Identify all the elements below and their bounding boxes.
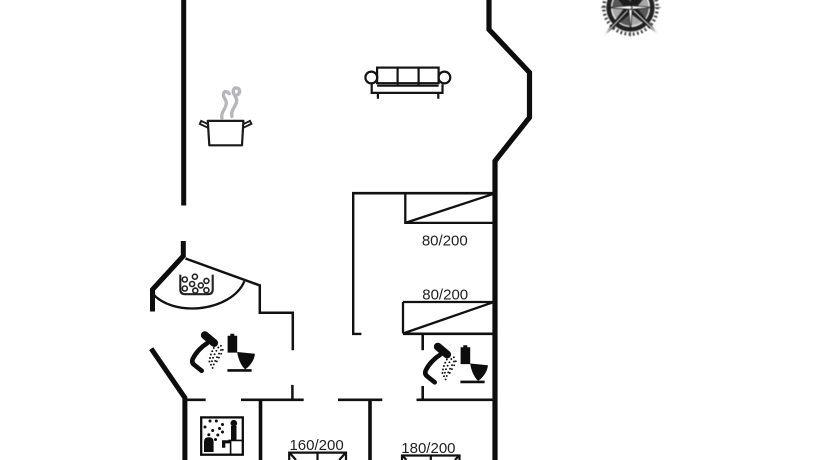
svg-text:80/200: 80/200 bbox=[422, 232, 468, 249]
svg-text:80/200: 80/200 bbox=[422, 287, 468, 304]
